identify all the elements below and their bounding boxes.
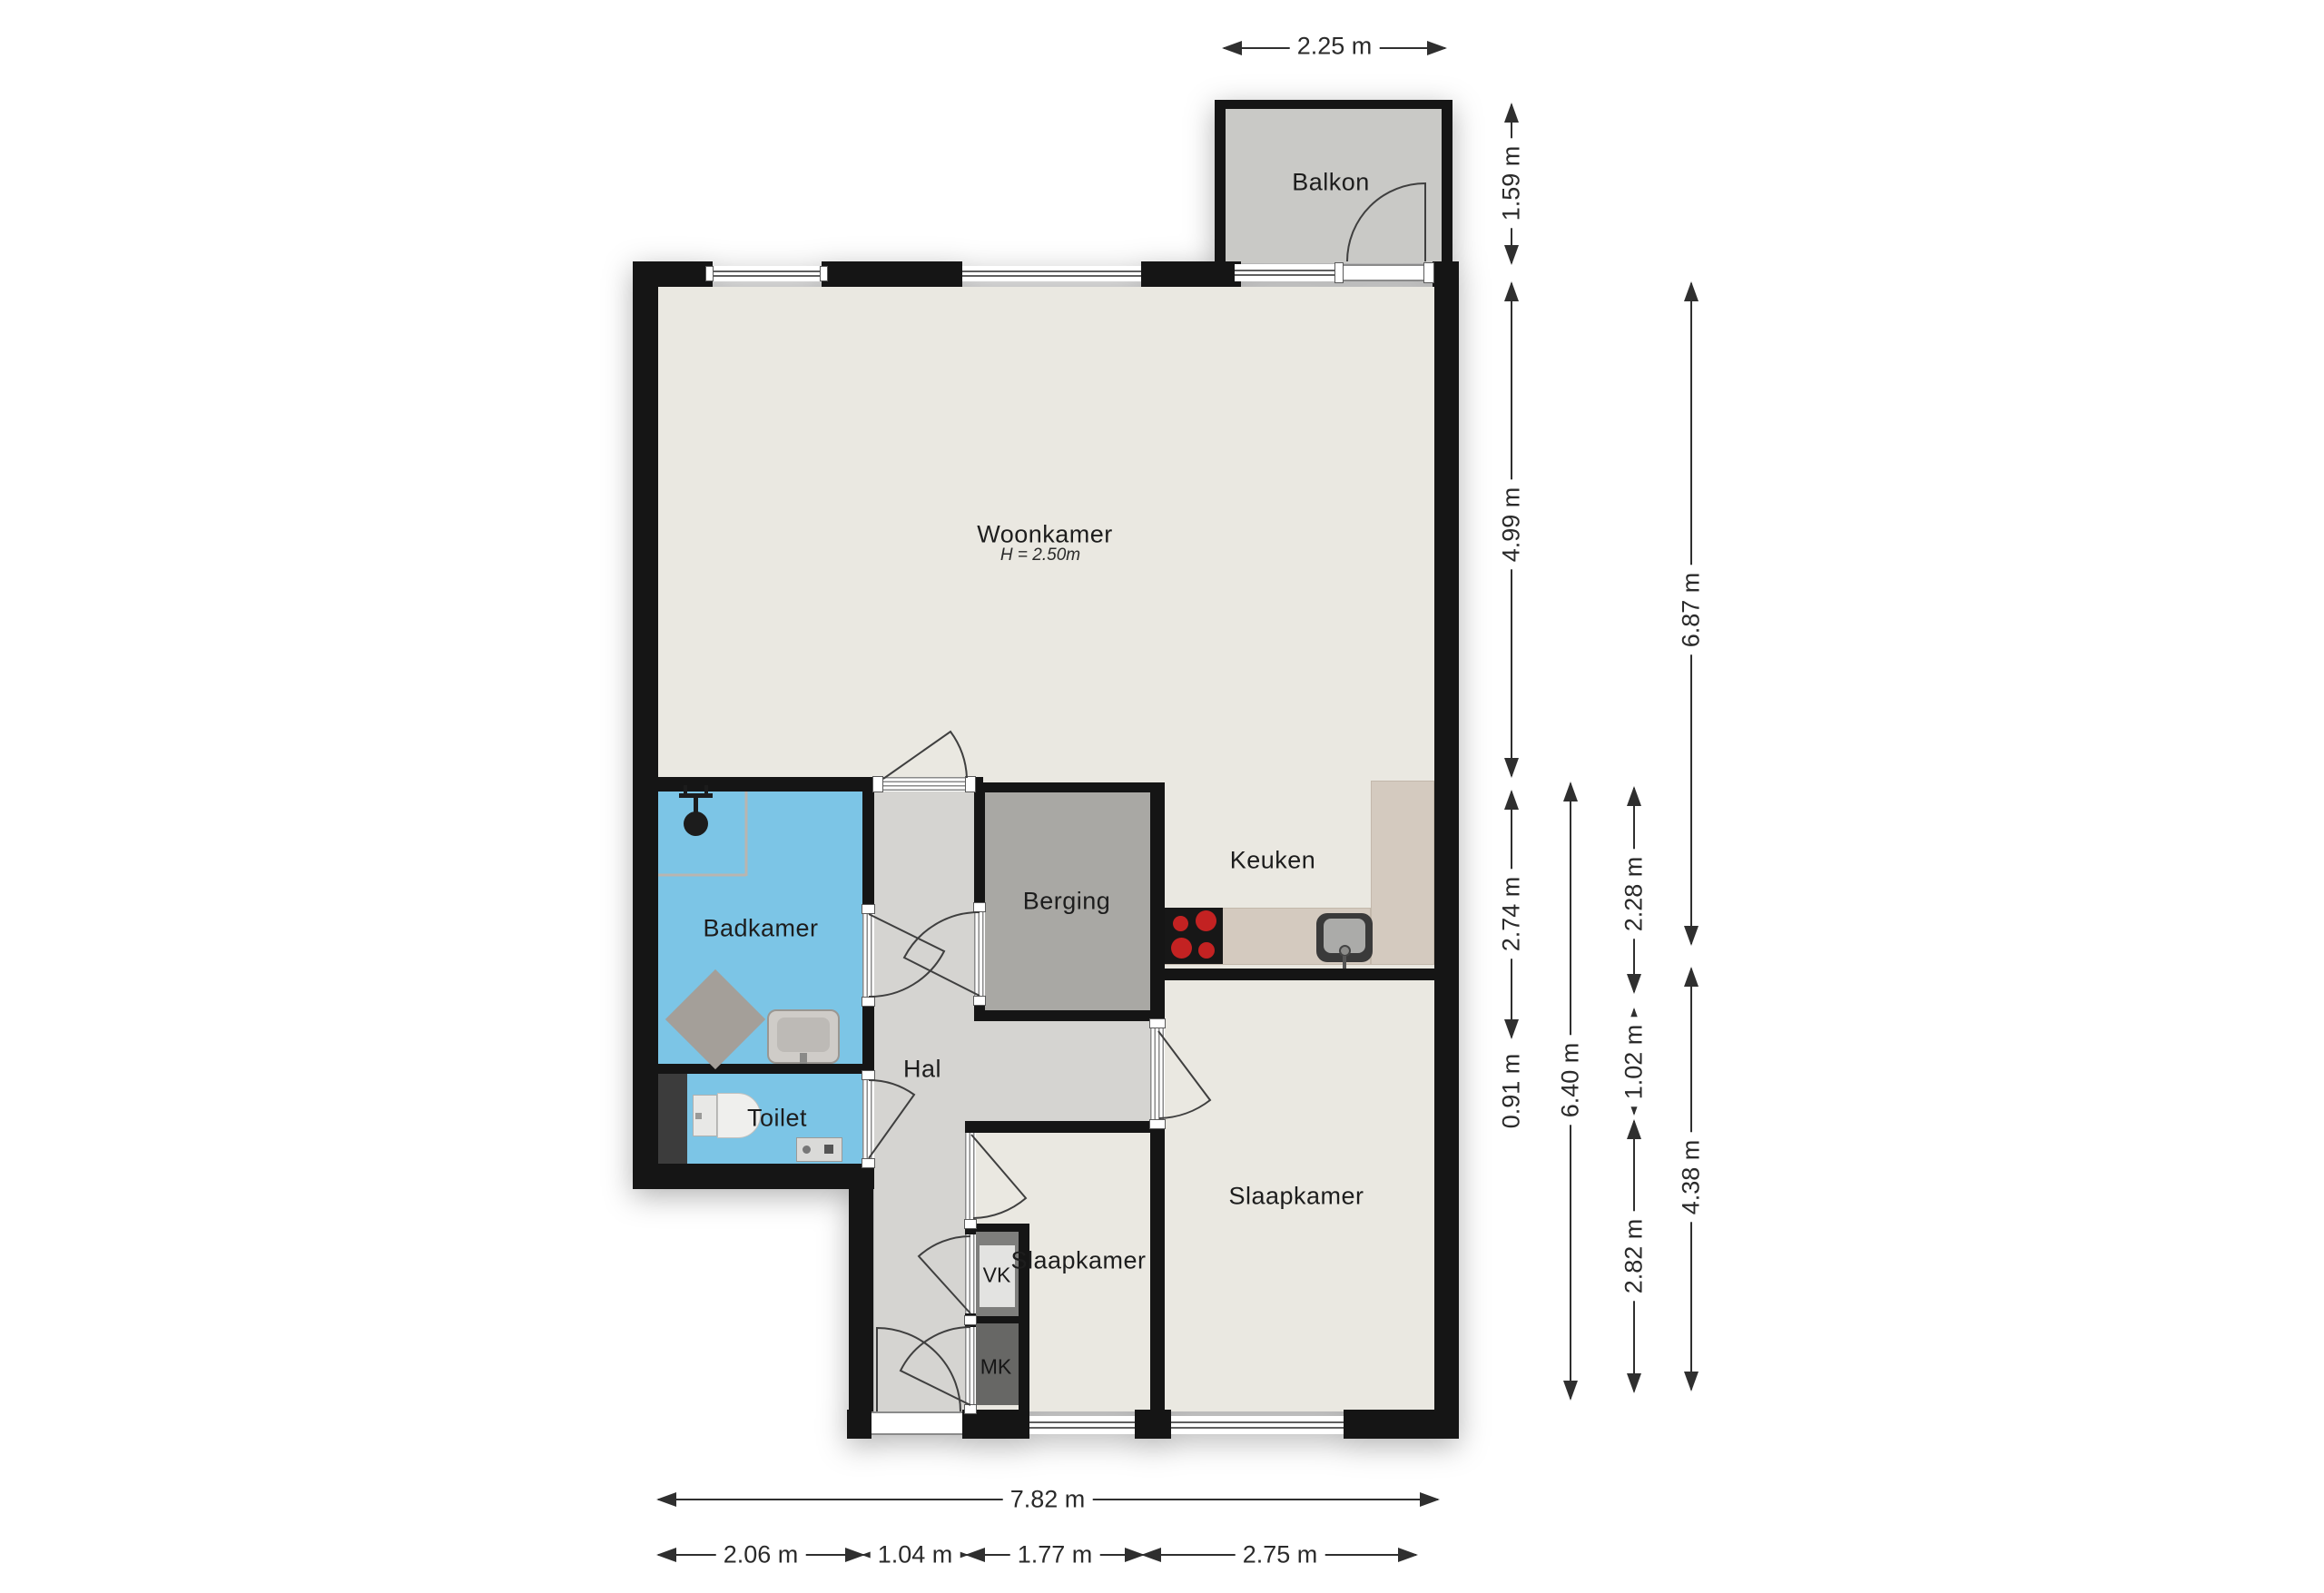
room-label-balkon: Balkon (1292, 169, 1370, 197)
room-label-slaapkamer: Slaapkamer (1228, 1183, 1364, 1211)
closet-label-mk: MK (980, 1355, 1012, 1380)
room-label-badkamer: Badkamer (703, 915, 818, 943)
dim-slaapkamer-depth: 4.38 m (1678, 1133, 1706, 1223)
dim-keuken-depth: 2.74 m (1498, 870, 1526, 959)
dim-woonkamer-depth: 4.99 m (1498, 480, 1526, 570)
dim-hal-depth: 1.02 m (1620, 1018, 1649, 1107)
room-label-hal: Hal (903, 1056, 941, 1084)
dim-balkon-width: 2.25 m (1290, 33, 1380, 61)
room-label-berging: Berging (1023, 888, 1111, 916)
dim-slaapkamer-klein-depth: 2.82 m (1620, 1212, 1649, 1302)
room-label-toilet: Toilet (747, 1105, 807, 1133)
floorplan-canvas: Woonkamer H = 2.50m Keuken Berging Hal B… (0, 0, 2324, 1593)
room-label-slaapkamer-klein: Slaapkamer (1010, 1247, 1146, 1275)
dim-slaapkamer-klein-width: 1.77 m (1010, 1541, 1100, 1569)
dim-hal-width: 1.04 m (871, 1541, 960, 1569)
dim-mid-total: 6.40 m (1557, 1036, 1585, 1126)
dim-slaapkamer-width: 2.75 m (1236, 1541, 1325, 1569)
dim-balkon-depth: 1.59 m (1498, 139, 1526, 229)
labels-layer: Woonkamer H = 2.50m Keuken Berging Hal B… (0, 0, 2324, 1593)
room-sublabel-woonkamer: H = 2.50m (1000, 546, 1080, 565)
dim-toilet-depth: 0.91 m (1498, 1047, 1526, 1136)
dim-badkamer-width: 2.06 m (716, 1541, 806, 1569)
closet-label-vk: VK (983, 1264, 1011, 1288)
dim-keuken-inner: 2.28 m (1620, 850, 1649, 939)
room-label-woonkamer: Woonkamer (977, 521, 1113, 549)
room-label-keuken: Keuken (1230, 847, 1316, 875)
dim-upper-total: 6.87 m (1678, 565, 1706, 655)
dim-total-width: 7.82 m (1003, 1486, 1093, 1514)
